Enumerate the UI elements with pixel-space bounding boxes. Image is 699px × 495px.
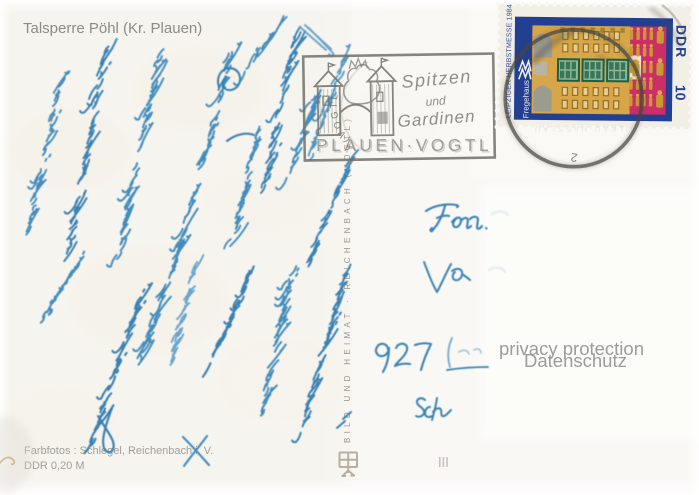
svg-text:und: und <box>425 93 446 109</box>
svg-text:PLAUEN·VOGTL: PLAUEN·VOGTL <box>316 135 492 155</box>
svg-text:Farbfotos : Schlegel, Reichenb: Farbfotos : Schlegel, Reichenbach i. V. <box>24 445 213 457</box>
svg-text:Fregehaus: Fregehaus <box>521 80 530 118</box>
svg-text:Datenschutz: Datenschutz <box>524 350 627 371</box>
svg-text:DDR 0,20 M: DDR 0,20 M <box>24 460 85 472</box>
svg-text:10: 10 <box>673 85 689 101</box>
svg-text:WILKAU·HASSLAU: WILKAU·HASSLAU <box>532 124 638 133</box>
svg-text:Talsperre Pöhl (Kr. Plauen): Talsperre Pöhl (Kr. Plauen) <box>23 20 202 37</box>
